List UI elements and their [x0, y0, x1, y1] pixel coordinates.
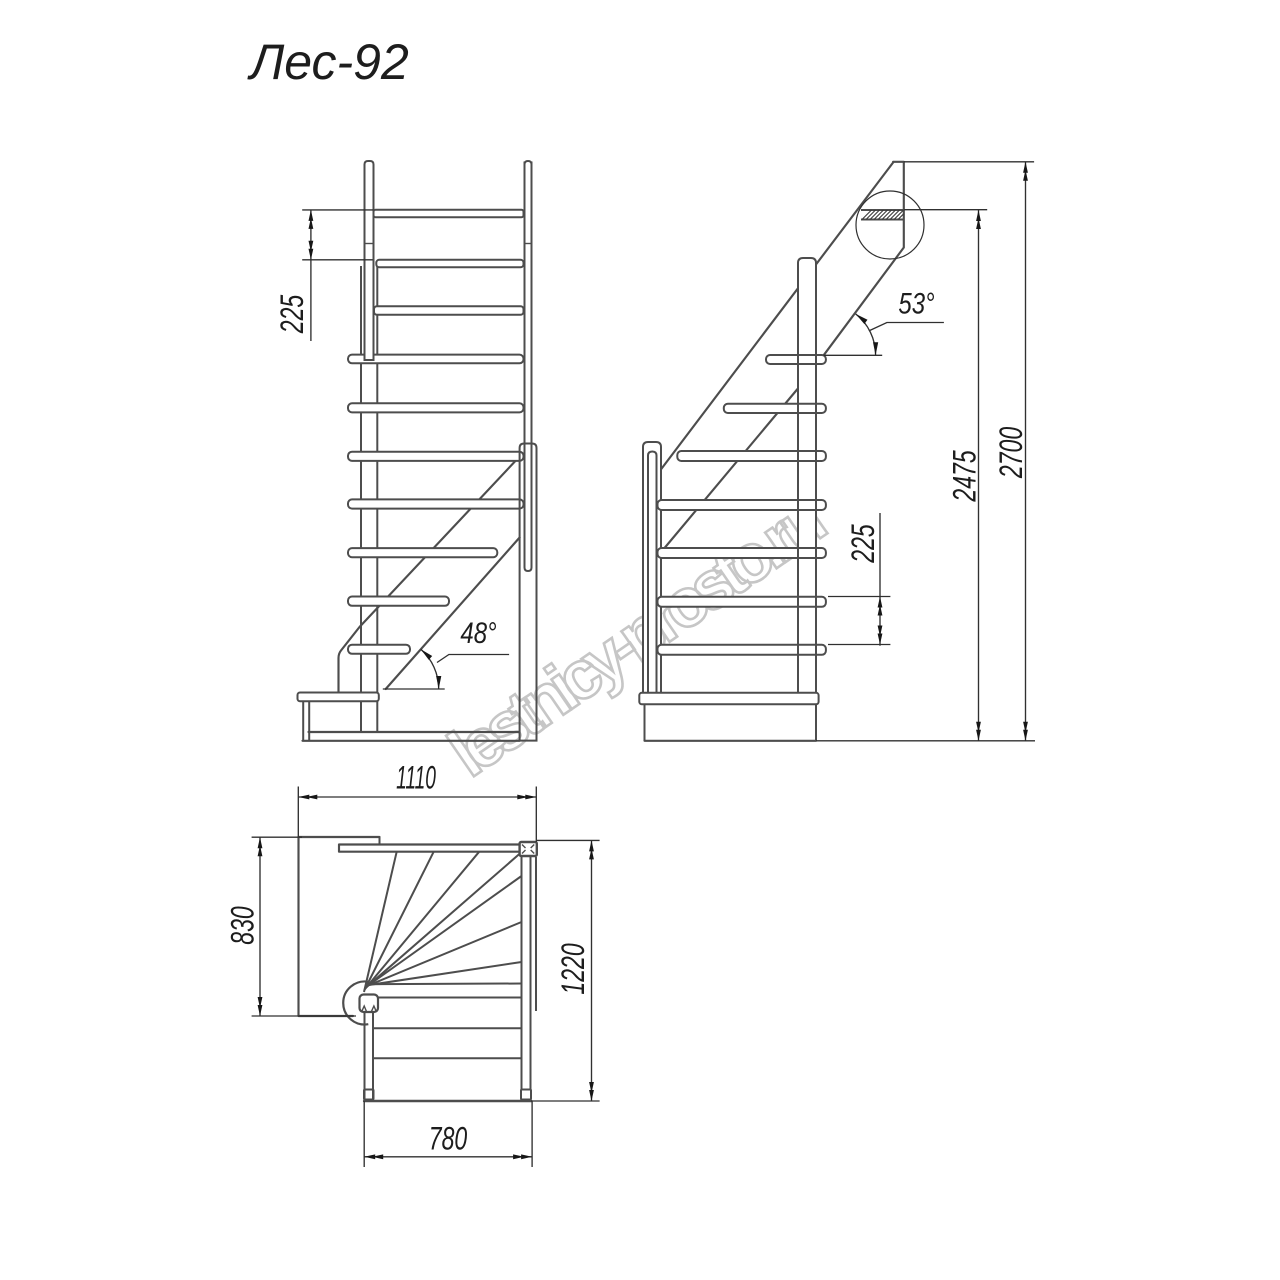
svg-text:780: 780	[429, 1121, 468, 1157]
svg-text:53°: 53°	[898, 286, 934, 320]
svg-text:48°: 48°	[460, 615, 496, 649]
svg-text:830: 830	[225, 906, 261, 945]
svg-text:225: 225	[274, 294, 310, 334]
svg-text:1110: 1110	[396, 759, 436, 795]
svg-text:Лес-92: Лес-92	[247, 34, 409, 90]
svg-text:2475: 2475	[947, 450, 983, 502]
svg-text:1220: 1220	[555, 943, 591, 995]
svg-text:2700: 2700	[993, 426, 1029, 478]
svg-text:225: 225	[845, 524, 881, 564]
